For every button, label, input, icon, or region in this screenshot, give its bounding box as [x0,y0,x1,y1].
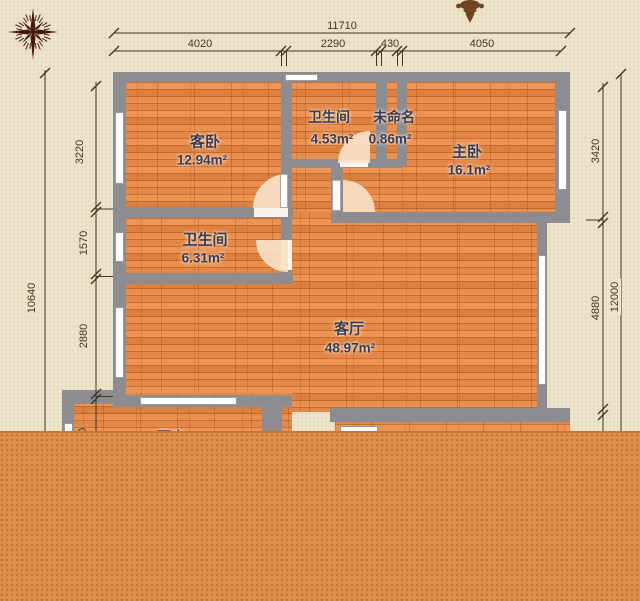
window-right-living [538,255,546,385]
window-bottom-living [140,397,237,405]
floor-plan-canvas: 客卧 12.94m² 卫生间 4.53m² 未命名 0.86m² 主卧 16.1… [0,0,640,601]
dim-left-seg-2: 1570 [78,231,90,255]
room-area-bathroom-mid: 6.31m² [182,251,225,266]
window-left-living [115,307,124,378]
ornament-icon [456,0,484,23]
wall-bathroom-mid-bottom [113,273,293,284]
door-gap-guest-bedroom [254,208,288,217]
wall-balcony-top [330,408,570,422]
dim-right-total: 12000 [609,279,621,316]
window-right-master [558,110,567,190]
room-label-bathroom-mid: 卫生间 [182,229,227,250]
wall-bottom-vertical [262,402,282,433]
dim-left-seg-3: 2880 [78,324,90,348]
room-label-guest-bedroom: 客卧 [190,131,220,152]
dim-right-seg-1: 3420 [590,139,602,163]
dim-right-seg-2: 4880 [590,296,602,320]
window-left-bathroom [115,232,124,262]
wall-top-outer [113,72,570,82]
room-area-living-room: 48.97m² [325,341,375,356]
dim-top-seg-3: 430 [381,38,399,50]
door-leaf-master-bedroom [332,180,341,211]
room-label-bathroom-top: 卫生间 [308,107,350,127]
dim-top-seg-2: 2290 [321,38,345,50]
window-left-guest-bedroom [115,112,124,184]
dim-left-total: 10640 [26,280,38,317]
wall-master-bottom [331,212,570,223]
dim-top-seg-4: 4050 [470,38,494,50]
dim-left-seg-1: 3220 [74,140,86,164]
room-label-unnamed: 未命名 [373,107,415,127]
room-area-master-bedroom: 16.1m² [448,163,491,178]
window-top [285,74,318,81]
compass-icon [8,8,58,60]
room-area-unnamed: 0.86m² [369,132,412,147]
room-area-guest-bedroom: 12.94m² [177,153,227,168]
room-label-living-room: 客厅 [334,318,364,339]
door-leaf-guest-bedroom [280,174,288,208]
dim-top-seg-1: 4020 [188,38,212,50]
dim-top-total: 11710 [327,20,357,32]
orange-cover-block [0,431,640,601]
room-label-master-bedroom: 主卧 [452,141,482,162]
room-area-bathroom-top: 4.53m² [311,132,354,147]
